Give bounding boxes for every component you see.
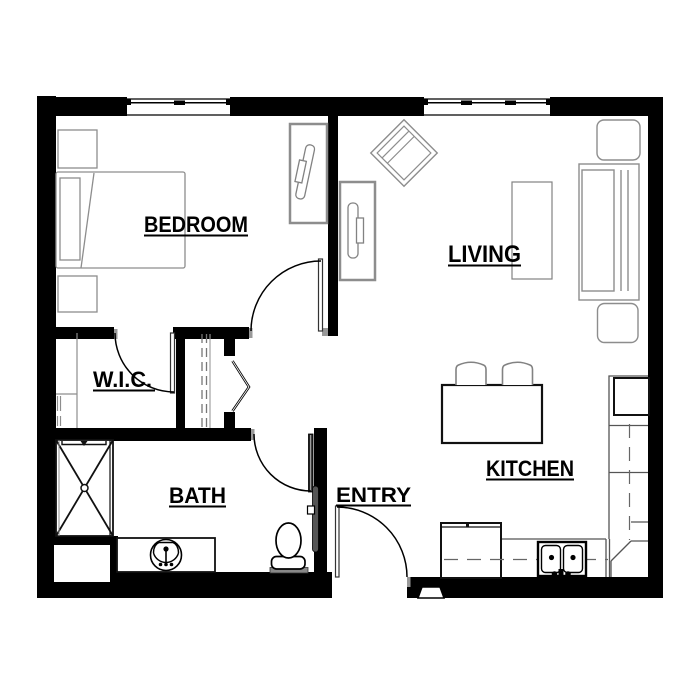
svg-text:ENTRY: ENTRY [336, 484, 411, 507]
svg-text:LIVING: LIVING [448, 241, 521, 268]
svg-text:BEDROOM: BEDROOM [144, 212, 248, 237]
svg-text:W.I.C.: W.I.C. [93, 367, 152, 392]
svg-text:BATH: BATH [169, 483, 226, 508]
svg-text:KITCHEN: KITCHEN [486, 456, 574, 481]
